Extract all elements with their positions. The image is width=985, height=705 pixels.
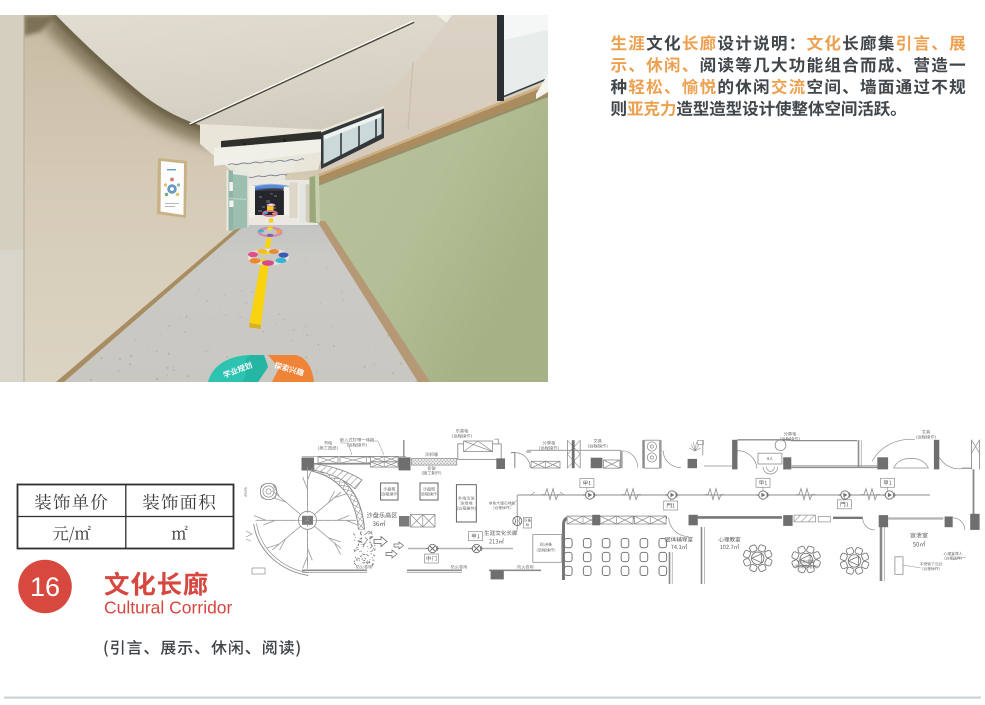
svg-text:16: 16 (30, 572, 60, 602)
svg-text:Cultural Corridor: Cultural Corridor (104, 598, 233, 618)
